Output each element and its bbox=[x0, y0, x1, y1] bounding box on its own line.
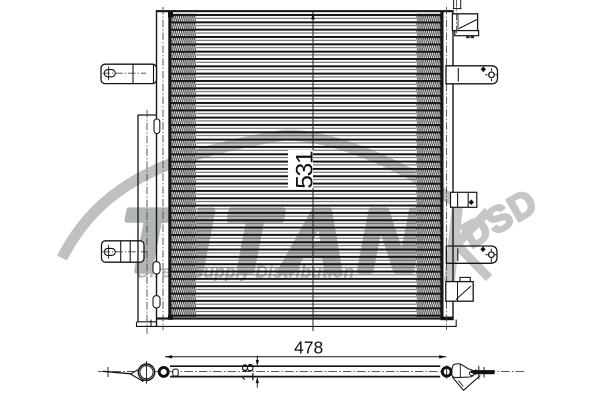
svg-text:478: 478 bbox=[294, 337, 323, 357]
svg-text:18: 18 bbox=[240, 363, 258, 381]
svg-text:531: 531 bbox=[291, 151, 318, 189]
